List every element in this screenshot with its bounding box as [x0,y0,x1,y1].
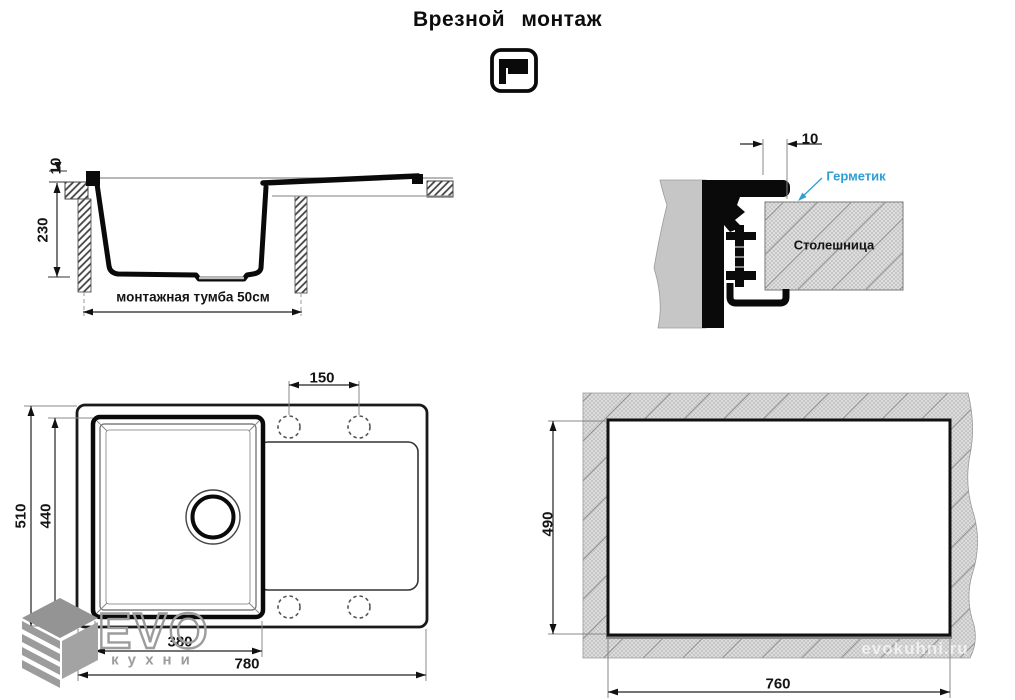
page-title: Врезной монтаж [0,8,1015,32]
sink-rim-vertical [702,180,724,328]
sealant-label: Герметик [826,170,885,183]
sink-rim-horizontal [702,180,790,197]
dim-label-bowl-length: 440 [39,503,54,528]
watermark: evokuhni.ru [861,639,968,659]
bowl-outline [93,417,263,617]
dim-label-overall-width: 780 [234,657,259,672]
drainboard-end [412,174,423,184]
cabinet-width-label: монтажная тумба 50см [116,290,269,304]
countertop-edge-left [65,182,88,199]
logo-sub-text: кухни [111,652,199,669]
cutout-rect [608,420,950,635]
dim-label-bowl-depth: 230 [36,217,51,242]
dim-label-rim-height: 10 [49,158,64,175]
cabinet-wall-left [78,199,91,292]
countertop-label: Столешница [794,239,875,252]
countertop-edge-right [427,181,453,197]
dim-label-cutout-width: 760 [765,677,790,692]
dim-label-cutout-depth: 490 [541,511,556,536]
clamp-flange-top [726,232,756,240]
cabinet-wall-right [295,196,307,293]
drainboard-profile [263,176,418,183]
sink-wall-section [654,180,706,328]
drainboard [258,442,418,590]
clamp-flange-bottom [726,271,756,280]
sink-bowl-profile [97,184,266,279]
mounting-detail-drawing [640,125,920,340]
inset-mount-icon [489,47,539,94]
mounting-diagram-page: Врезной монтаж [0,0,1015,700]
dim-label-tap-spacing: 150 [309,371,334,386]
dim-label-overhang: 10 [802,132,819,147]
dim-label-overall-depth: 510 [14,503,29,528]
